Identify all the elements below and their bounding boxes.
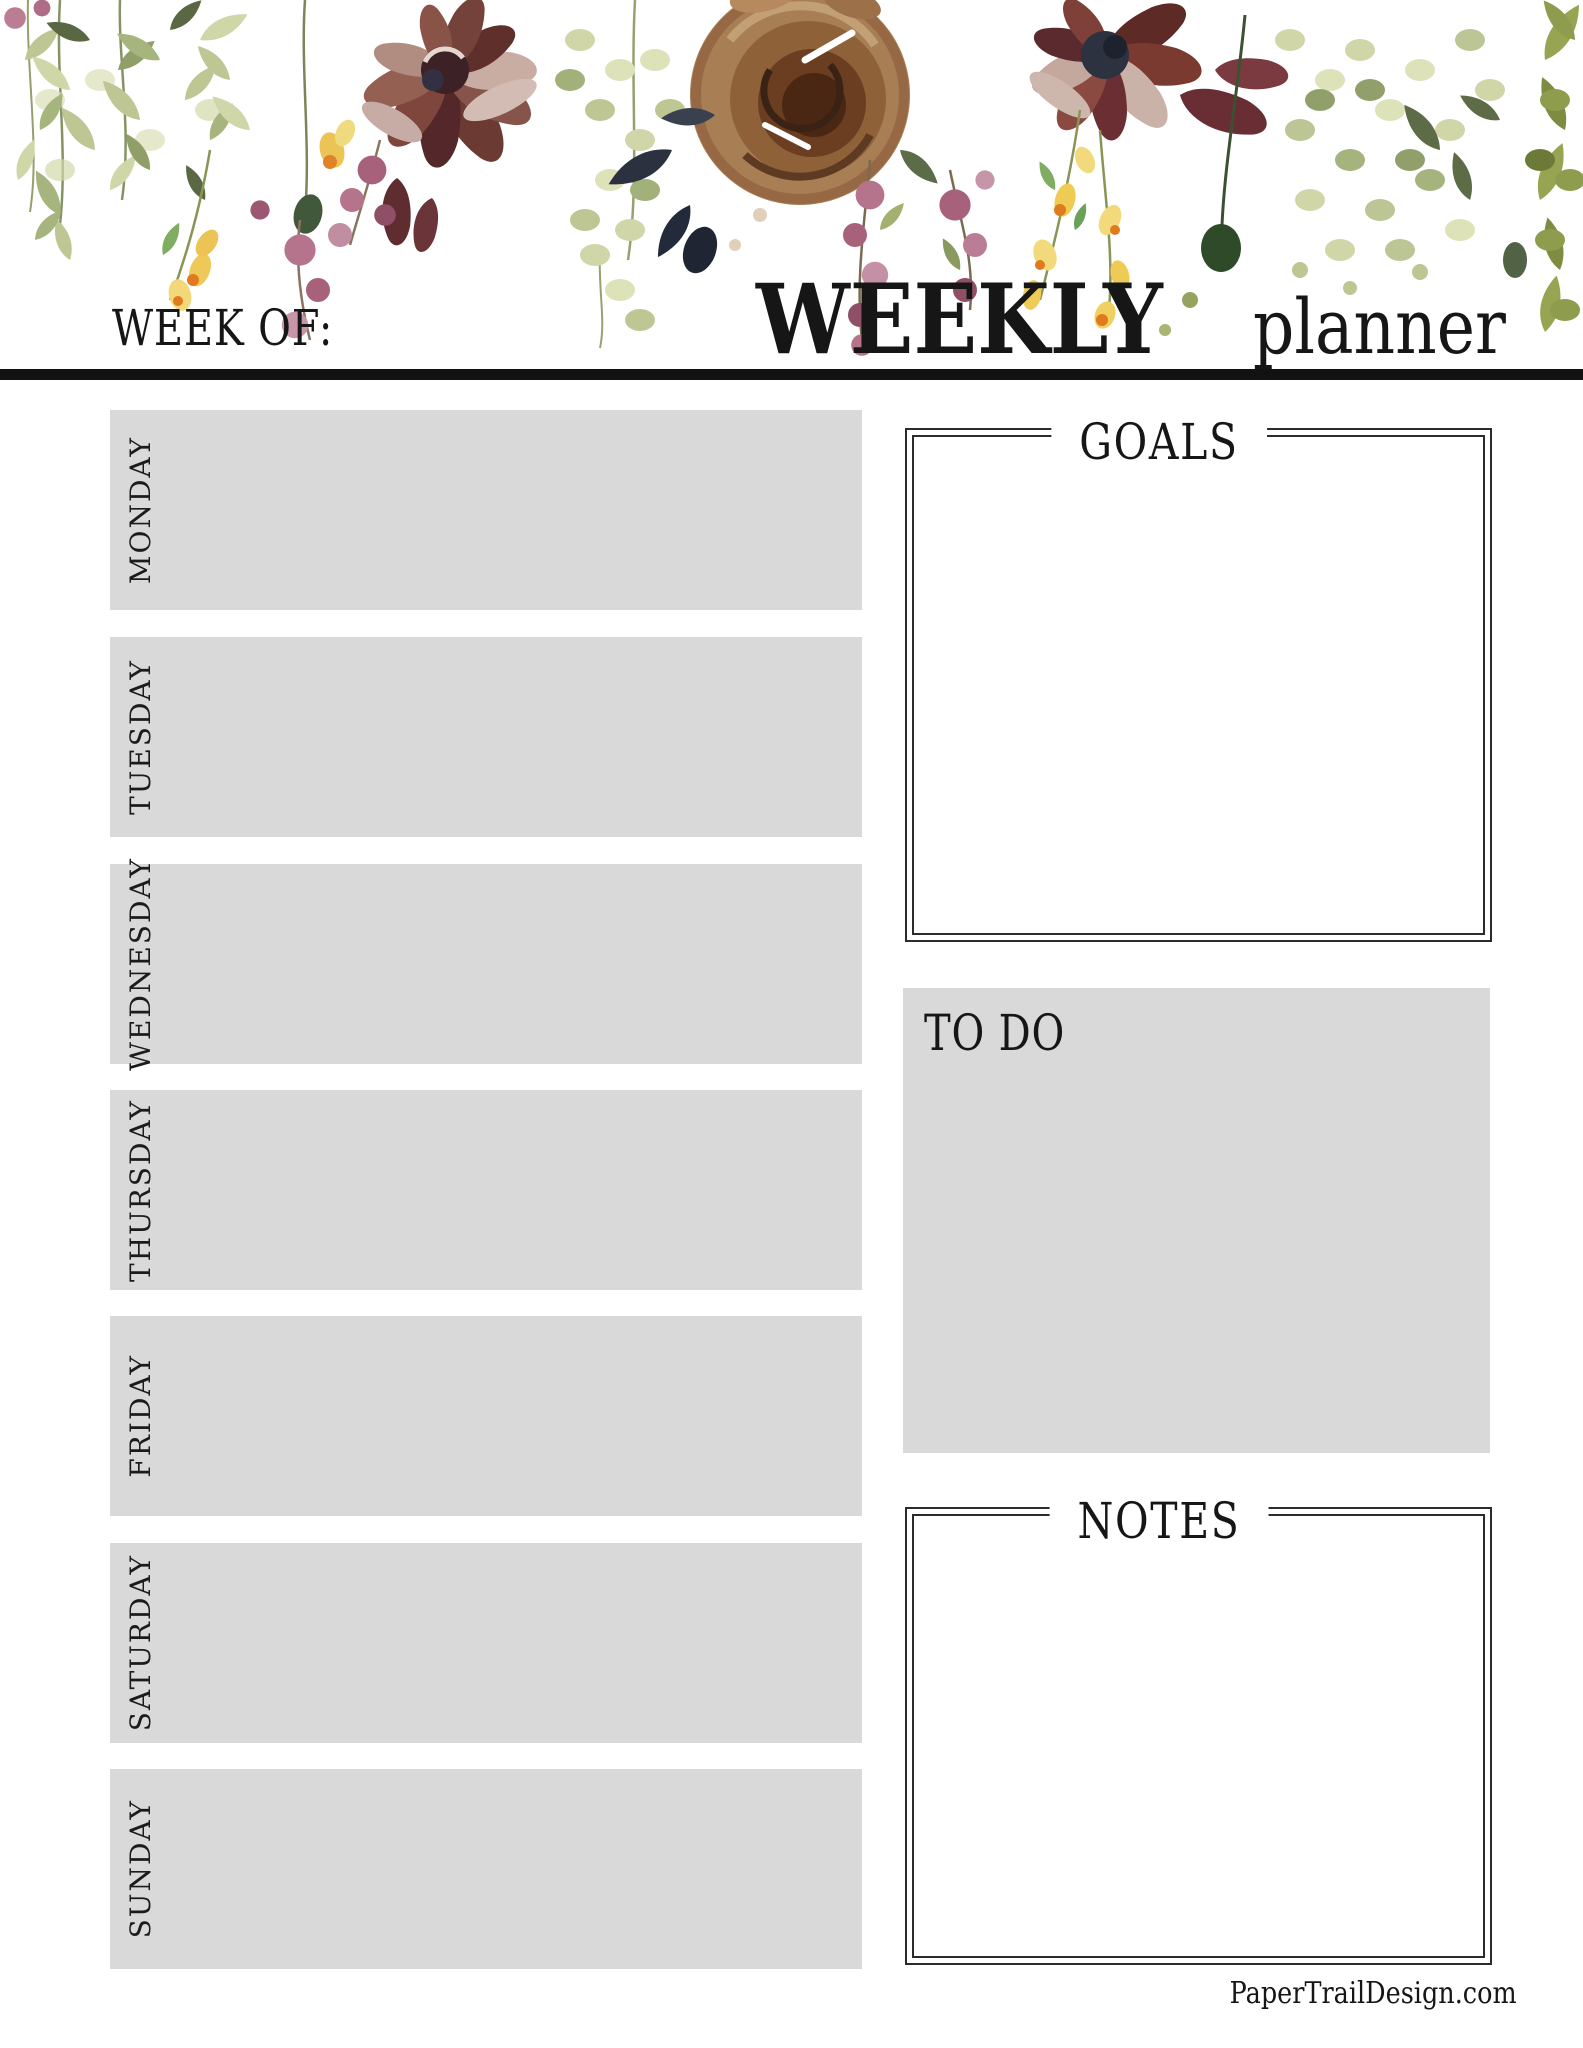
title-weekly: WEEKLY [756,272,1163,368]
maroon-spike-petal [1214,55,1290,92]
goals-title: GOALS [1051,413,1266,471]
sunday-box[interactable]: SUNDAY [110,1769,862,1969]
notes-title: NOTES [1049,1492,1268,1550]
notes-box[interactable]: NOTES [905,1507,1492,1965]
sunday-label: SUNDAY [124,1799,157,1938]
tuesday-box[interactable]: TUESDAY [110,637,862,837]
monday-label-col: MONDAY [118,410,162,610]
left-greenery [4,0,326,262]
thursday-label: THURSDAY [124,1099,157,1282]
monday-label: MONDAY [124,436,157,584]
saturday-label-col: SATURDAY [118,1543,162,1743]
friday-label: FRIDAY [124,1354,157,1478]
thursday-label-col: THURSDAY [118,1090,162,1290]
friday-label-col: FRIDAY [118,1316,162,1516]
week-of-label: WEEK OF: [112,303,388,353]
center-rose [690,0,910,205]
goals-inner-frame [912,435,1485,935]
right-greenery [1275,29,1527,295]
tuesday-label-col: TUESDAY [118,637,162,837]
sunday-label-col: SUNDAY [118,1769,162,1969]
tuesday-label: TUESDAY [124,659,157,815]
wednesday-box[interactable]: WEDNESDAY [110,864,862,1064]
wednesday-label-col: WEDNESDAY [118,864,162,1064]
saturday-box[interactable]: SATURDAY [110,1543,862,1743]
weekly-planner-page: WEEK OF: WEEKLY planner MONDAY TUESDAY W… [0,0,1583,2048]
notes-inner-frame [912,1514,1485,1958]
wednesday-label: WEDNESDAY [124,857,157,1071]
monday-box[interactable]: MONDAY [110,410,862,610]
maroon-bud [409,196,443,255]
title-planner: planner [1253,289,1506,365]
todo-title: TO DO [924,1004,1065,1062]
right-burgundy-flower [1026,0,1205,142]
todo-box[interactable]: TO DO [903,988,1490,1453]
footer-credit: PaperTrailDesign.com [1230,1976,1517,2011]
saturday-label: SATURDAY [124,1554,157,1731]
page-title: WEEKLY planner [756,272,1551,368]
friday-box[interactable]: FRIDAY [110,1316,862,1516]
goals-box[interactable]: GOALS [905,428,1492,942]
week-of-text: WEEK OF: [112,303,333,353]
thursday-box[interactable]: THURSDAY [110,1090,862,1290]
